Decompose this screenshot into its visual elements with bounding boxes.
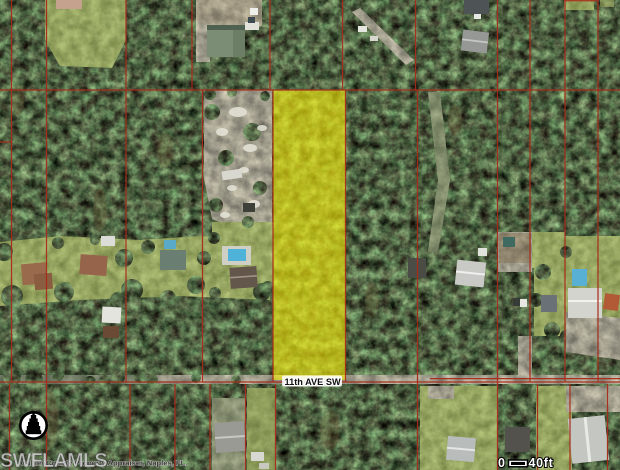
svg-text:11th AVE SW: 11th AVE SW — [285, 377, 341, 387]
svg-text:40ft: 40ft — [529, 456, 554, 470]
svg-text:SWFLAMLS: SWFLAMLS — [0, 450, 107, 470]
svg-text:0: 0 — [498, 456, 505, 470]
